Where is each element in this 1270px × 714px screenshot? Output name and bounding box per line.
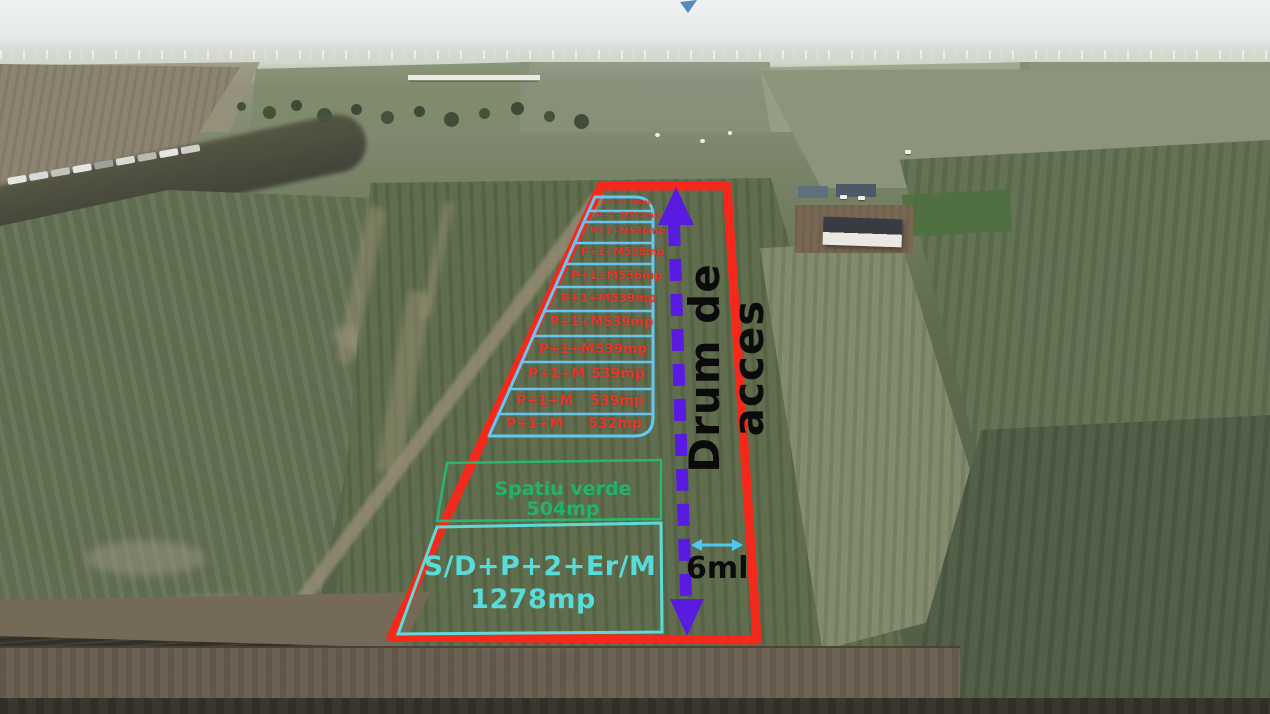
green-space-label: Spatiu verde 504mp	[468, 480, 658, 520]
parcel-label: P+1+M504mp	[598, 199, 656, 206]
parcel-label: P+1+M532mp	[502, 416, 646, 432]
parcel-label: P+1+M539mp	[557, 291, 653, 305]
aerial-photo: P+1+M504mp P+1+M512mp P+1+M536mp P+1+M53…	[0, 0, 1270, 714]
parcel-label: P+1+M539mp	[512, 393, 648, 409]
parcel-label: P+1+M536mp	[586, 226, 654, 237]
access-road-label: Drum de acces	[683, 192, 733, 544]
large-plot-label-line1: S/D+P+2+Er/M	[410, 553, 670, 581]
parcel-label: P+1+M512mp	[592, 211, 656, 220]
parcel-label: P+1+M539mp	[546, 315, 652, 330]
parcel-label: P+1+M538mp	[577, 246, 654, 258]
parcel-label: P+1+M539mp	[535, 341, 651, 357]
cursor-glyph	[680, 0, 697, 13]
large-plot-label-line2: 1278mp	[403, 586, 663, 614]
parcel-label: P+1+M536mp	[567, 268, 654, 282]
width-arrow-right	[732, 539, 743, 551]
arrow-head-down	[670, 599, 704, 636]
parcel-label: P+1+M539mp	[524, 366, 649, 382]
road-width-label: 6ml	[686, 553, 748, 585]
